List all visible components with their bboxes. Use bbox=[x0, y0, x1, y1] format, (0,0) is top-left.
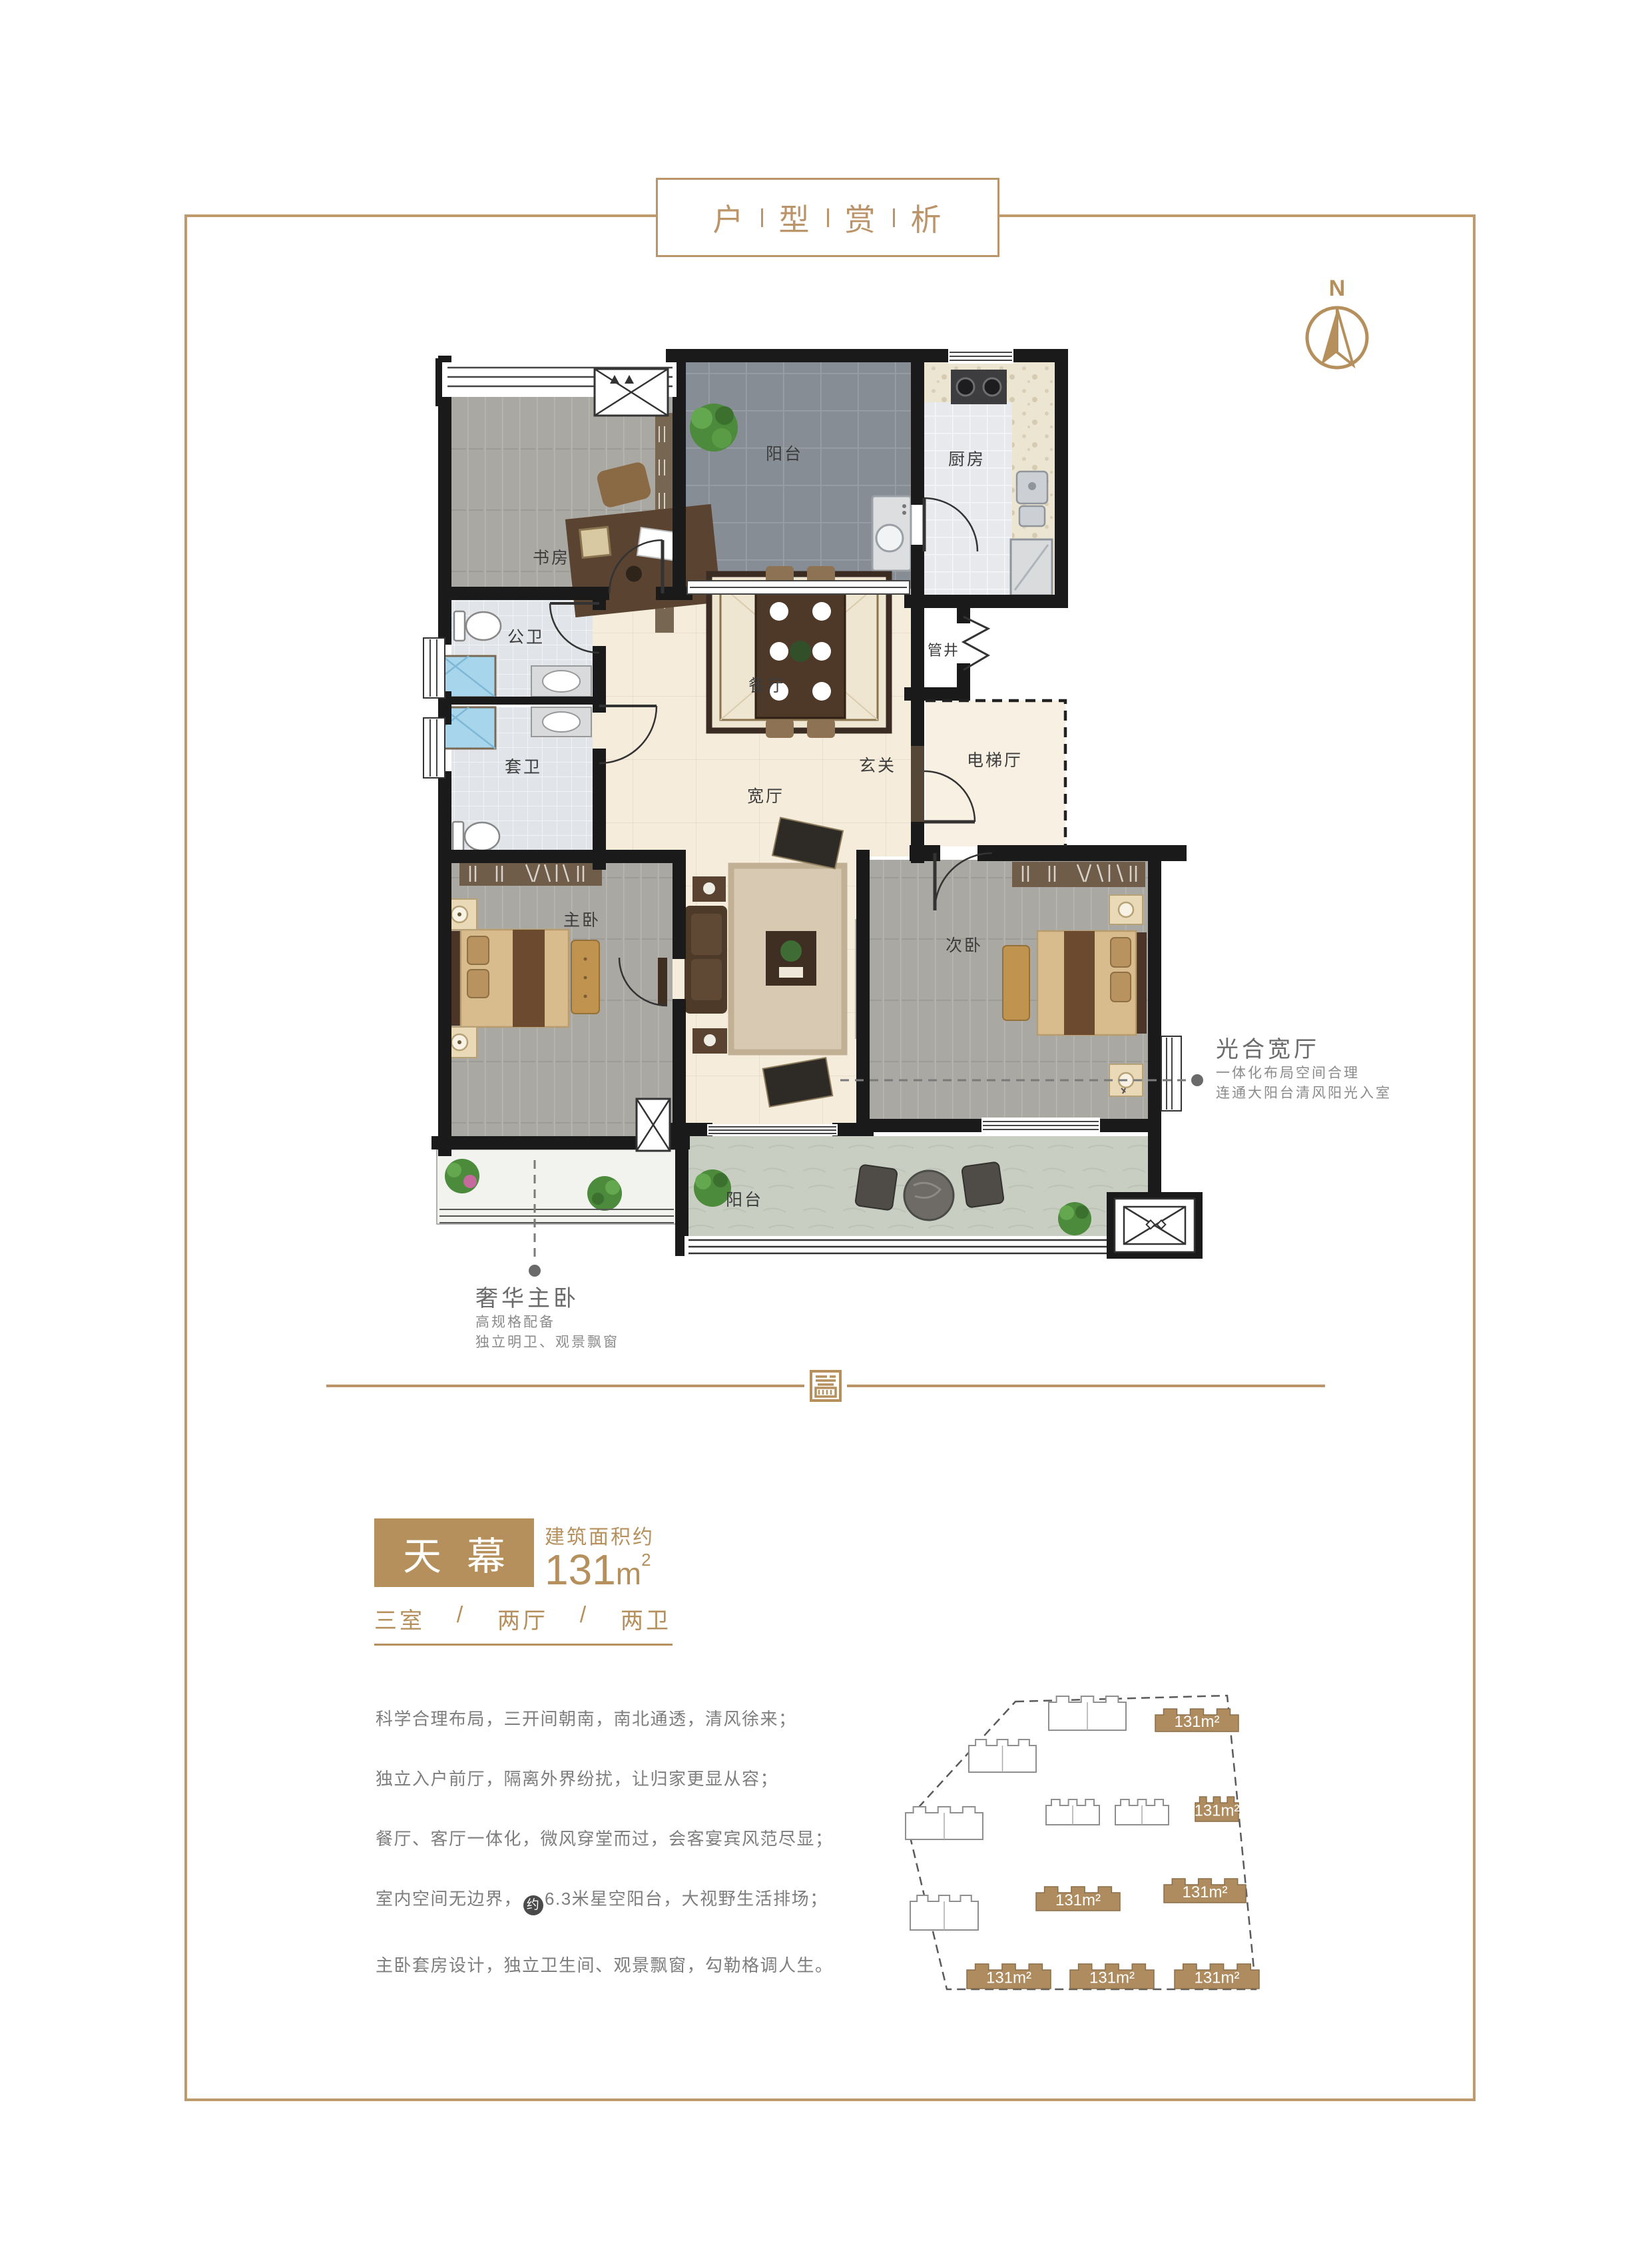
title-char: 赏 bbox=[845, 196, 877, 240]
site-building-area-label: 131m² bbox=[1174, 1713, 1219, 1731]
label-living: 宽厅 bbox=[747, 787, 784, 806]
label-balcony-top: 阳台 bbox=[766, 445, 803, 464]
floor-plan: 阳台 厨房 书房 公卫 套卫 餐厅 管井 玄关 电梯厅 宽厅 主卧 次卧 阳台 bbox=[400, 313, 1225, 1285]
divider-line bbox=[847, 1385, 1325, 1387]
label-kitchen: 厨房 bbox=[948, 450, 985, 469]
site-plan: 131m²131m²131m²131m²131m²131m²131m² bbox=[886, 1678, 1272, 2011]
unit-layout-rooms: 三室 bbox=[374, 1602, 425, 1635]
label-bath-public: 公卫 bbox=[507, 628, 545, 647]
compass-north-label: N bbox=[1329, 276, 1346, 301]
unit-layout: 三室 / 两厅 / 两卫 bbox=[374, 1602, 671, 1635]
title-separator bbox=[827, 208, 829, 227]
unit-name: 天幕 bbox=[378, 1525, 531, 1581]
description-line: 室内空间无边界，约6.3米星空阳台，大视野生活排场； bbox=[376, 1889, 842, 1915]
callout-master-line: 高规格配备 bbox=[475, 1313, 619, 1333]
label-pipe-shaft: 管井 bbox=[928, 642, 960, 659]
site-building-area-label: 131m² bbox=[986, 1969, 1031, 1987]
title-char: 析 bbox=[911, 196, 943, 240]
callout-master: 奢华主卧 高规格配备 独立明卫、观景飘窗 bbox=[475, 1280, 619, 1353]
label-balcony-bottom: 阳台 bbox=[726, 1191, 763, 1209]
site-building-area-label: 131m² bbox=[1194, 1969, 1239, 1987]
seal-ornament-icon bbox=[810, 1370, 842, 1402]
unit-layout-halls: 两厅 bbox=[497, 1602, 548, 1635]
label-master-bedroom: 主卧 bbox=[563, 911, 601, 930]
callout-living-line: 一体化布局空间合理 bbox=[1216, 1064, 1392, 1084]
site-boundary bbox=[906, 1696, 1256, 1989]
title-char: 型 bbox=[779, 196, 811, 240]
unit-underline bbox=[374, 1644, 673, 1646]
divider-line bbox=[326, 1385, 804, 1387]
callout-living-line: 连通大阳台清风阳光入室 bbox=[1216, 1084, 1392, 1104]
unit-area-sup: 2 bbox=[641, 1550, 651, 1570]
unit-layout-baths: 两卫 bbox=[621, 1602, 671, 1635]
description-line: 主卧套房设计，独立卫生间、观景飘窗，勾勒格调人生。 bbox=[376, 1955, 842, 1975]
label-elevator-hall: 电梯厅 bbox=[967, 751, 1023, 770]
callout-living: 光合宽厅 一体化布局空间合理 连通大阳台清风阳光入室 bbox=[1216, 1031, 1392, 1104]
circled-approx-icon: 约 bbox=[523, 1895, 543, 1915]
description-line: 独立入户前厅，隔离外界纷扰，让归家更显从容； bbox=[376, 1769, 842, 1789]
site-building-area-label: 131m² bbox=[1089, 1969, 1135, 1987]
label-bath-ensuite: 套卫 bbox=[505, 758, 542, 777]
label-foyer: 玄关 bbox=[859, 757, 896, 775]
site-building-area-label: 131m² bbox=[1055, 1891, 1101, 1909]
description-line: 科学合理布局，三开间朝南，南北通透，清风徐来； bbox=[376, 1709, 842, 1729]
unit-area: 建筑面积约 131m2 bbox=[545, 1520, 655, 1592]
site-building-area-label: 131m² bbox=[1182, 1883, 1227, 1901]
callout-living-title: 光合宽厅 bbox=[1216, 1031, 1392, 1064]
unit-area-number: 131 bbox=[545, 1546, 616, 1594]
label-study: 书房 bbox=[533, 549, 570, 567]
callout-master-line: 独立明卫、观景飘窗 bbox=[475, 1333, 619, 1353]
compass-icon: N bbox=[1290, 268, 1384, 381]
section-divider bbox=[326, 1370, 1325, 1402]
label-dining: 餐厅 bbox=[748, 677, 786, 695]
title-separator bbox=[893, 208, 895, 227]
title-separator bbox=[761, 208, 763, 227]
page: 户 型 赏 析 N bbox=[0, 0, 1652, 2243]
title-char: 户 bbox=[713, 196, 745, 240]
unit-layout-separator: / bbox=[457, 1602, 465, 1635]
unit-layout-separator: / bbox=[580, 1602, 589, 1635]
unit-name-badge: 天幕 bbox=[374, 1518, 534, 1587]
label-second-bedroom: 次卧 bbox=[946, 936, 983, 955]
description: 科学合理布局，三开间朝南，南北通透，清风徐来； 独立入户前厅，隔离外界纷扰，让归… bbox=[376, 1709, 842, 2015]
callout-master-title: 奢华主卧 bbox=[475, 1280, 619, 1313]
unit-area-unit: m bbox=[616, 1556, 641, 1591]
page-title: 户 型 赏 析 bbox=[656, 178, 999, 257]
site-building-area-label: 131m² bbox=[1194, 1802, 1239, 1820]
description-line: 餐厅、客厅一体化，微风穿堂而过，会客宴宾风范尽显； bbox=[376, 1829, 842, 1849]
